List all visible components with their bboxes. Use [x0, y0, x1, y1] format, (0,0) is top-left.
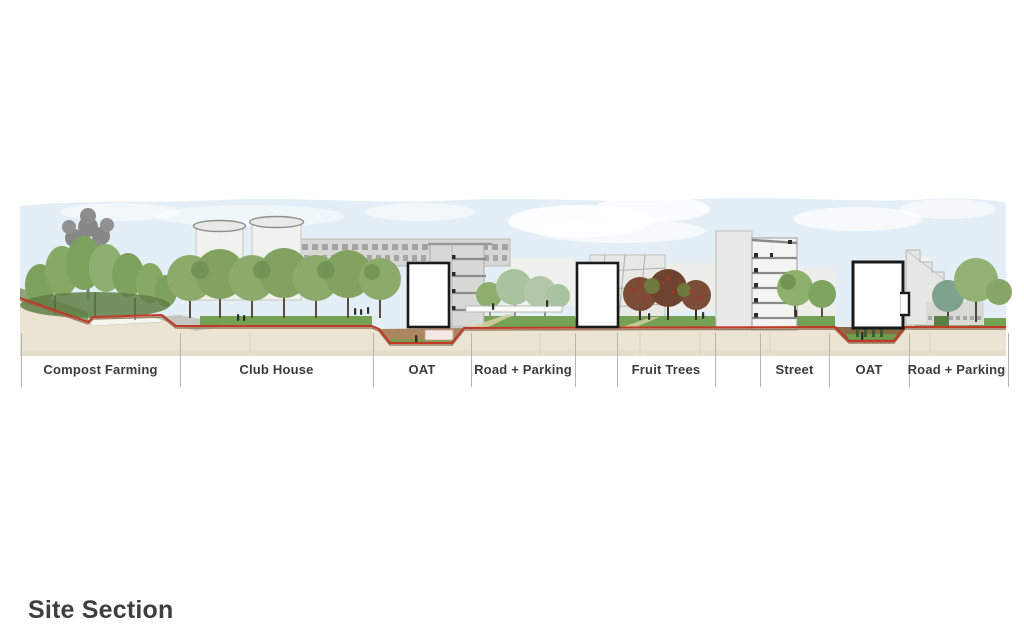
zone-label-road-parking-1: Road + Parking	[471, 361, 575, 379]
zone-label-oat-2: OAT	[829, 361, 909, 379]
section-marker-3	[853, 262, 909, 328]
site-section-slide: Compost Farming Club House OAT Road + Pa…	[0, 0, 1024, 631]
zone-label-fruit-trees: Fruit Trees	[617, 361, 715, 379]
zone-label-club-house: Club House	[180, 361, 373, 379]
zone-label-compost-farming: Compost Farming	[21, 361, 180, 379]
oat-pit-1	[379, 328, 464, 343]
section-marker-2	[577, 263, 618, 327]
zone-divider	[715, 333, 716, 387]
zone-divider	[1008, 333, 1009, 387]
section-marker-1	[408, 263, 449, 327]
zone-label-road-parking-2: Road + Parking	[905, 361, 1008, 379]
zone-label-street: Street	[760, 361, 829, 379]
zone-divider	[575, 333, 576, 387]
zone-label-oat-1: OAT	[373, 361, 471, 379]
page-title: Site Section	[28, 596, 174, 625]
site-section-illustration	[0, 0, 1024, 631]
